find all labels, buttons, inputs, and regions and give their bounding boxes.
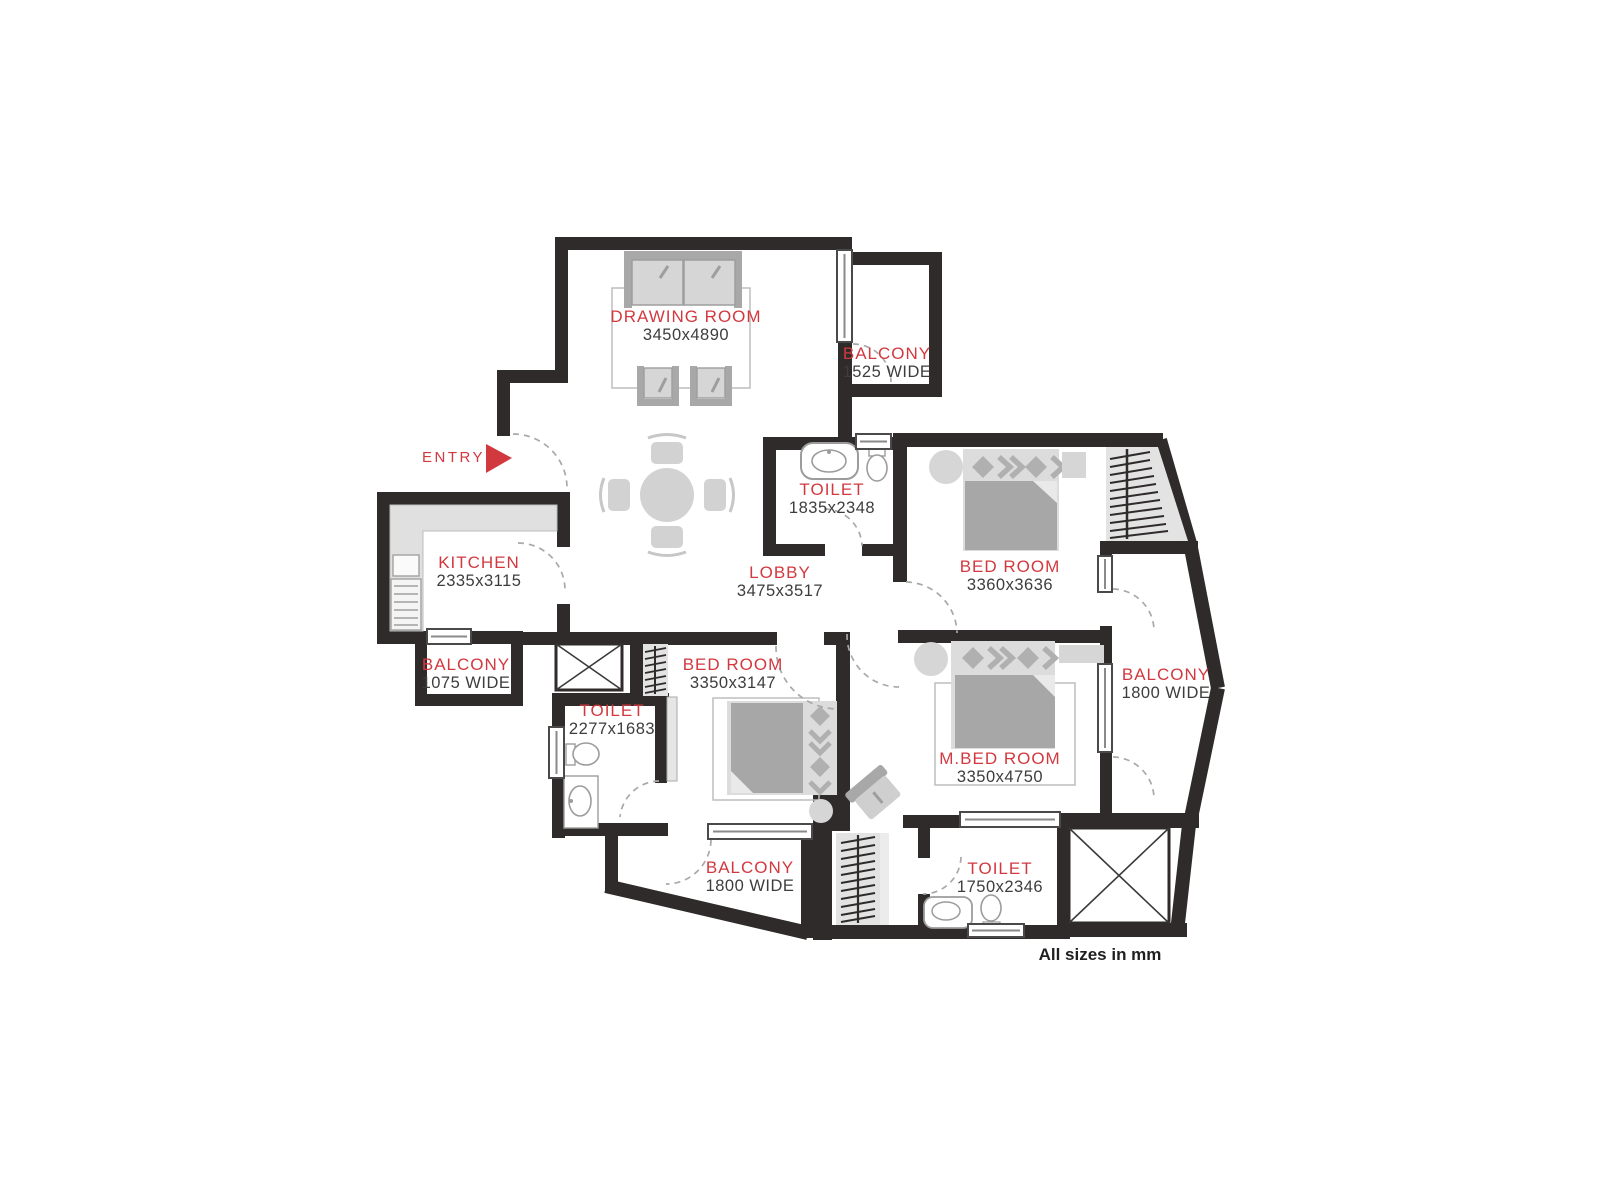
- door-arc: [853, 344, 891, 382]
- entry-arrow-icon: [486, 444, 512, 473]
- door-arc: [776, 646, 837, 709]
- floor-plan: DRAWING ROOM 3450x4890 BALCONY 1525 WIDE…: [0, 0, 1600, 1200]
- wardrobe-icon: [836, 833, 889, 925]
- door-arc: [847, 634, 899, 687]
- window-icon: [856, 434, 891, 449]
- floor-plan-drawing: [0, 0, 1600, 1200]
- shaft-icon: [1069, 828, 1169, 923]
- bed-icon: [929, 449, 1086, 551]
- window-icon: [549, 727, 564, 778]
- door-arc: [1113, 757, 1154, 799]
- sofa-icon: [612, 251, 750, 406]
- kitchen-counter-icon: [390, 505, 557, 631]
- toilet-fixtures: [564, 743, 599, 828]
- windows: [427, 250, 1112, 937]
- bed-icon: [667, 697, 837, 823]
- sizes-note: All sizes in mm: [1039, 945, 1162, 965]
- door-arc: [923, 857, 961, 894]
- door-arc: [518, 543, 565, 590]
- door-arc: [824, 509, 862, 546]
- window-icon: [427, 629, 471, 644]
- stove-icon: [391, 579, 421, 630]
- window-icon: [708, 824, 812, 839]
- bed-icon: [844, 641, 1104, 823]
- window-icon: [1098, 664, 1112, 752]
- window-icon: [837, 250, 852, 342]
- door-arc: [906, 582, 957, 633]
- shelf-icon: [667, 697, 677, 781]
- door-arc: [513, 434, 567, 488]
- window-icon: [1098, 556, 1112, 592]
- shaft-icon: [556, 644, 622, 690]
- wardrobe-icon: [643, 644, 668, 696]
- door-arc: [1113, 589, 1154, 630]
- entry-label: ENTRY: [422, 449, 485, 467]
- dining-table-icon: [601, 435, 734, 556]
- window-icon: [960, 812, 1060, 827]
- door-arc: [620, 781, 659, 817]
- armchair-icon: [844, 764, 905, 823]
- window-icon: [968, 924, 1024, 937]
- sink-icon: [393, 555, 419, 576]
- door-arc: [666, 840, 711, 884]
